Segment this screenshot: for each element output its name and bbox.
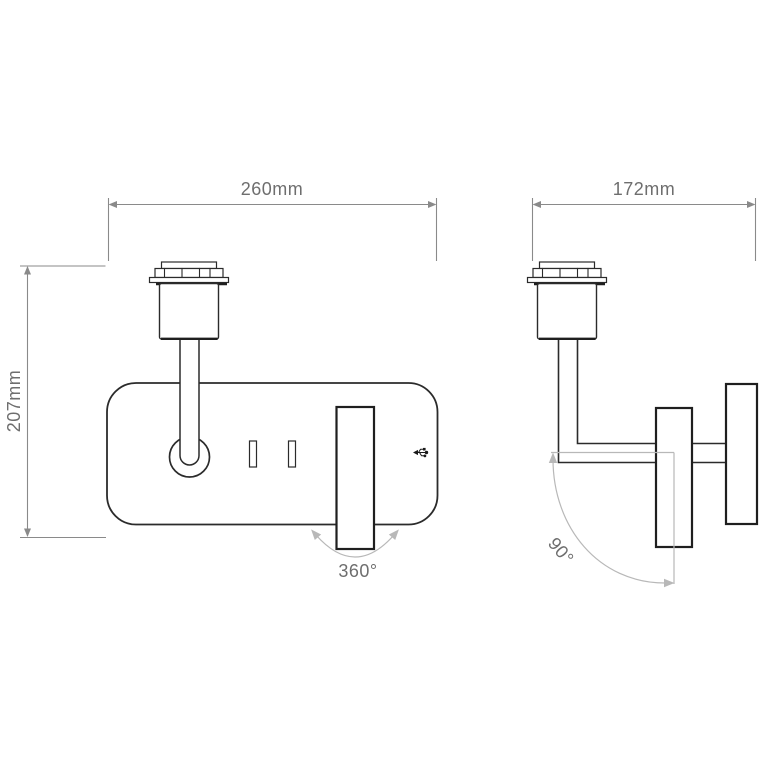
arrowhead [24,266,31,275]
lamp-head-side [528,262,607,339]
arrowhead [533,201,542,208]
depth-dimension-label: 172mm [613,179,676,199]
elbow-arm-inner [578,339,657,444]
rotation-90-label: 90° [544,534,578,569]
head-adjuster-ring [533,269,601,278]
front-view: 360° [107,262,438,581]
head-flange [528,278,607,283]
arrowhead [747,201,756,208]
side-view: 90° [528,262,758,587]
width-dimension: 260mm [109,179,437,261]
head-adjuster-ring [155,269,223,278]
height-dimension: 207mm [4,266,106,538]
backplate-body [107,383,438,525]
technical-drawing: 360° [0,0,768,768]
arrowhead [549,453,557,464]
rotation-arc [553,459,665,583]
lamp-head [150,262,229,339]
head-top-cap [162,262,217,269]
drawing-svg: 360° [0,0,768,768]
head-body [160,284,219,340]
width-dimension-label: 260mm [241,179,304,199]
stem-mask [180,339,199,465]
arrowhead [428,201,437,208]
depth-dimension: 172mm [533,179,756,261]
arrowhead [664,579,675,587]
wall-plate [726,384,757,524]
rotation-360-label: 360° [338,561,377,581]
arrowhead [109,201,118,208]
head-body [538,284,597,340]
arrowhead [24,529,31,538]
reading-spot-cylinder [337,407,375,549]
height-dimension-label: 207mm [4,370,24,433]
head-flange [150,278,229,283]
head-top-cap [540,262,595,269]
